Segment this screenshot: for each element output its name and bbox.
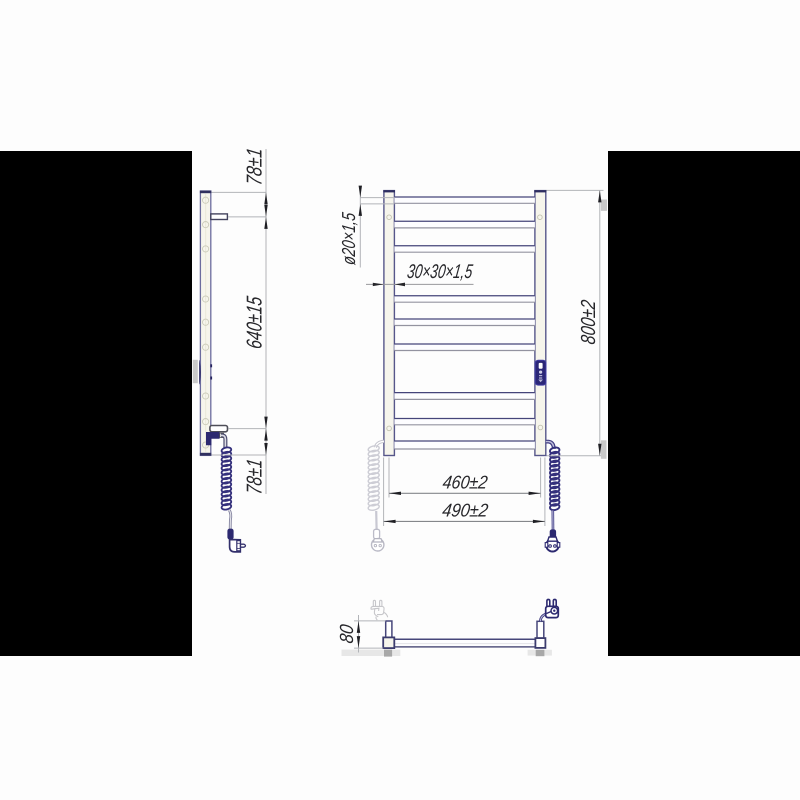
svg-text:ø20×1,5: ø20×1,5: [339, 211, 360, 266]
svg-text:80: 80: [337, 623, 358, 645]
svg-text:800±2: 800±2: [578, 298, 600, 346]
svg-text:78±1: 78±1: [241, 457, 266, 495]
svg-text:30×30×1,5: 30×30×1,5: [406, 261, 475, 283]
svg-text:490±2: 490±2: [441, 500, 490, 521]
svg-text:78±1: 78±1: [241, 146, 266, 186]
svg-text:640±15: 640±15: [241, 294, 266, 350]
svg-text:460±2: 460±2: [441, 471, 489, 492]
